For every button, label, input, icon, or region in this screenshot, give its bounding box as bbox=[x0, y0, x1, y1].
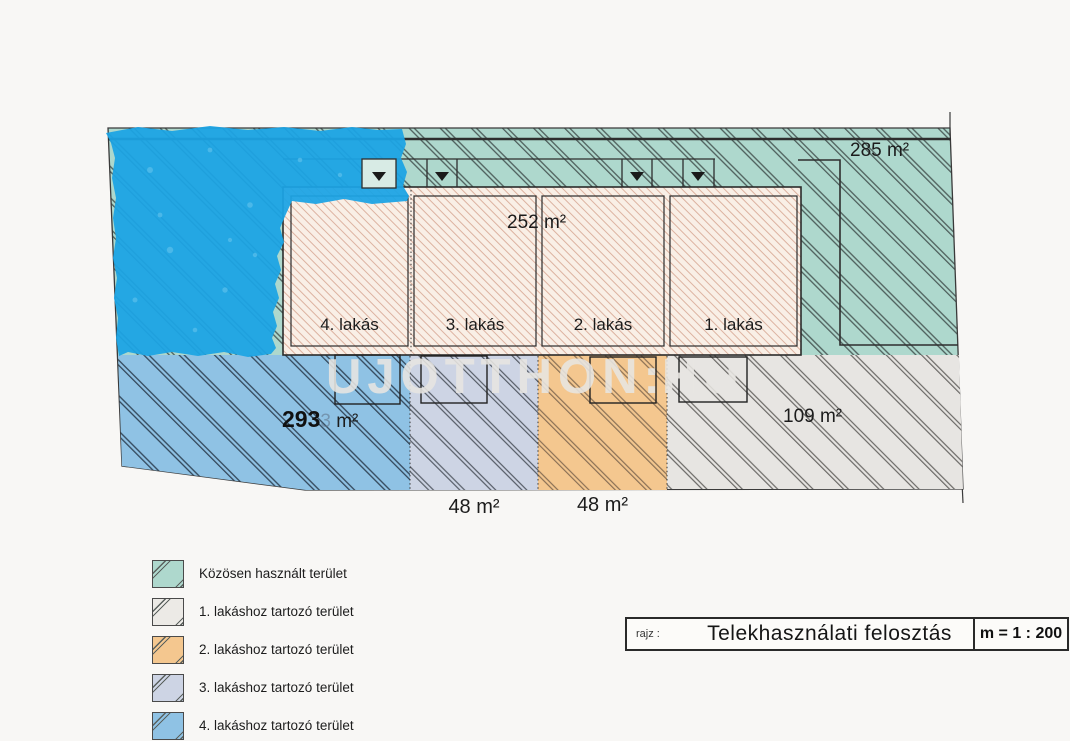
legend-swatch-unit1 bbox=[152, 598, 184, 626]
handwritten-number: 293 bbox=[282, 406, 320, 432]
legend-label: 3. lakáshoz tartozó terület bbox=[199, 680, 354, 695]
unit-label-4: 4. lakás bbox=[291, 315, 408, 335]
legend-item-unit1: 1. lakáshoz tartozó terület bbox=[152, 598, 354, 625]
area-label-building: 252 m² bbox=[507, 212, 566, 234]
watermark-right: HU bbox=[662, 350, 745, 404]
legend-label: 4. lakáshoz tartozó terület bbox=[199, 718, 354, 733]
area-label-garden3: 48 m² bbox=[410, 496, 538, 519]
unit-label-1: 1. lakás bbox=[670, 315, 797, 335]
legend-item-unit4: 4. lakáshoz tartozó terület bbox=[152, 712, 354, 739]
watermark: UJOTTHON:HU bbox=[326, 349, 745, 405]
legend-label: Közösen használt terület bbox=[199, 566, 347, 581]
area-label-garden1: 109 m² bbox=[783, 406, 842, 428]
site-plan-page: 285 m² 252 m² 4. lakás 3. lakás 2. lakás… bbox=[0, 0, 1070, 741]
drawing-scale: m = 1 : 200 bbox=[973, 619, 1067, 649]
legend-item-common: Közösen használt terület bbox=[152, 560, 354, 587]
drawing-title: Telekhasználati felosztás bbox=[686, 619, 973, 649]
legend-item-unit3: 3. lakáshoz tartozó terület bbox=[152, 674, 354, 701]
legend-label: 1. lakáshoz tartozó terület bbox=[199, 604, 354, 619]
unit-suffix: m² bbox=[336, 411, 358, 432]
overprinted-digit: 3 bbox=[320, 411, 331, 432]
watermark-colon: : bbox=[644, 350, 662, 404]
legend-swatch-unit2 bbox=[152, 636, 184, 664]
unit-label-2: 2. lakás bbox=[542, 315, 664, 335]
legend-item-unit2: 2. lakáshoz tartozó terület bbox=[152, 636, 354, 663]
legend-label: 2. lakáshoz tartozó terület bbox=[199, 642, 354, 657]
title-block-prefix: rajz : bbox=[627, 619, 686, 649]
title-block: rajz : Telekhasználati felosztás m = 1 :… bbox=[625, 617, 1069, 651]
area-label-garden4: 2933 m² bbox=[282, 406, 358, 433]
legend-swatch-unit4 bbox=[152, 712, 184, 740]
watermark-left: UJOTTHON bbox=[326, 350, 644, 404]
legend: Közösen használt terület 1. lakáshoz tar… bbox=[152, 560, 354, 741]
area-label-garden2: 48 m² bbox=[538, 494, 667, 517]
legend-swatch-unit3 bbox=[152, 674, 184, 702]
area-label-common: 285 m² bbox=[850, 140, 909, 162]
unit-label-3: 3. lakás bbox=[414, 315, 536, 335]
legend-swatch-common bbox=[152, 560, 184, 588]
